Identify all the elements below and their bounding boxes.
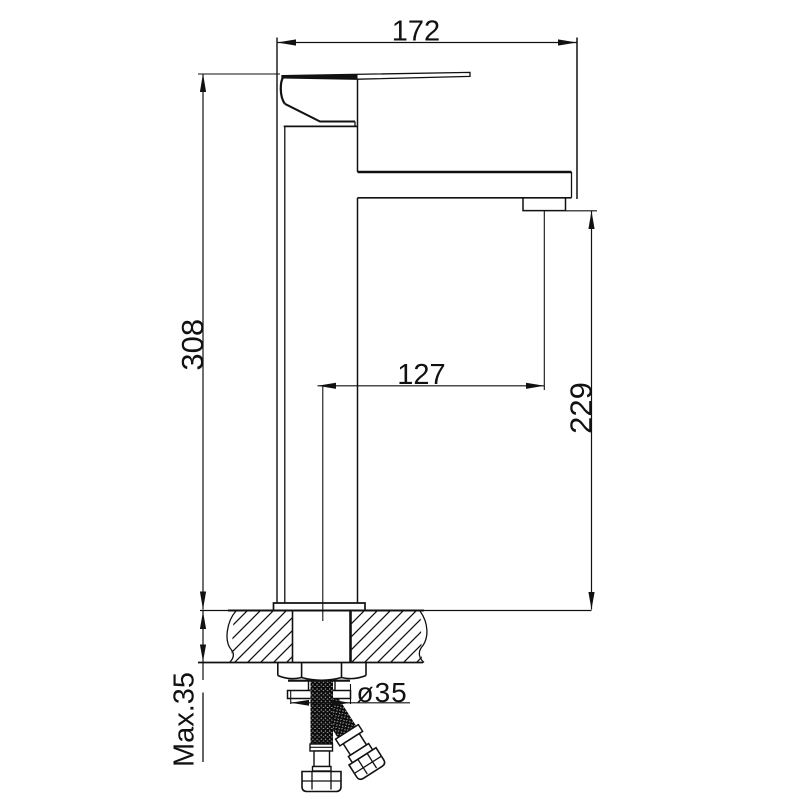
svg-text:308: 308 bbox=[175, 319, 210, 371]
svg-text:ø35: ø35 bbox=[357, 677, 408, 708]
svg-text:229: 229 bbox=[564, 382, 599, 434]
svg-text:127: 127 bbox=[397, 359, 445, 391]
svg-text:Max.35: Max.35 bbox=[169, 672, 201, 767]
svg-text:172: 172 bbox=[392, 16, 440, 48]
